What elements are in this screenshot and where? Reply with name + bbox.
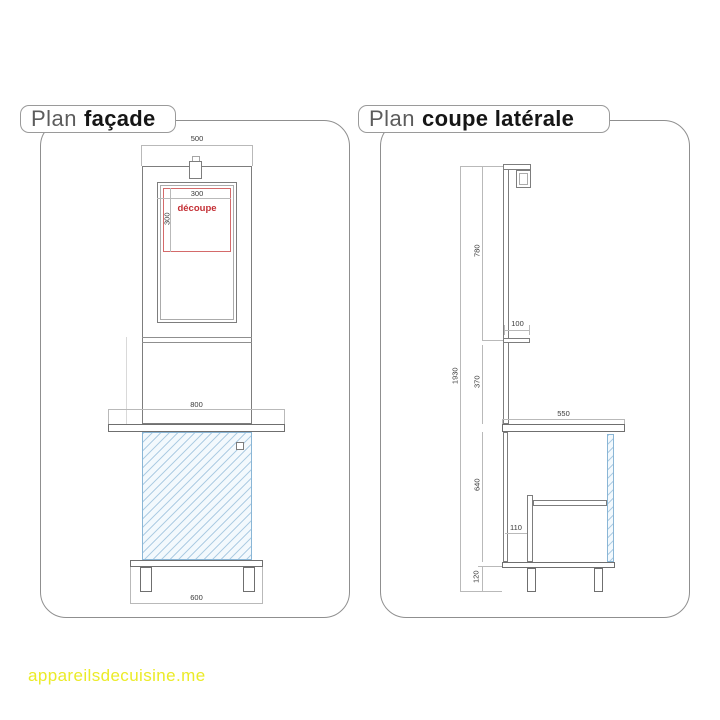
dim-550-label: 550 [502, 410, 625, 418]
dim-120-label: 120 [472, 565, 480, 589]
dim-500-ext-left [141, 145, 142, 166]
facade-glass-panel [142, 432, 252, 560]
dim-cutout-width-label: 300 [163, 190, 231, 198]
dim-500-line [141, 145, 253, 146]
dim-370-label: 370 [473, 370, 481, 394]
dim-1930-label: 1930 [451, 364, 459, 388]
dim-370-line [482, 345, 483, 424]
dim-800-line [108, 409, 285, 410]
facade-divider-top [142, 337, 252, 338]
dim-780-label: 780 [473, 239, 481, 263]
dim-tick-top [460, 166, 503, 167]
dim-800-label: 800 [108, 401, 285, 409]
coupe-panel-frame [380, 120, 690, 618]
dim-cutout-width-line [157, 198, 231, 199]
dim-780-line [482, 166, 483, 340]
dim-600-label: 600 [130, 594, 263, 602]
facade-cam-mount-box [189, 161, 202, 179]
facade-leg-right [243, 567, 255, 592]
dim-500-label: 500 [141, 135, 253, 143]
dim-100-label: 100 [504, 320, 531, 328]
dim-tick-bottom [460, 591, 502, 592]
coupe-worktop [502, 424, 625, 432]
dim-110-line [505, 533, 527, 534]
coupe-cabinet-back [503, 432, 508, 562]
dim-800-ext-left [108, 409, 109, 424]
facade-title-prefix: Plan [31, 106, 77, 132]
coupe-glass-strip [607, 434, 614, 562]
technical-drawing-page: 500 300 300 découpe 800 600 Plan façade … [0, 0, 720, 720]
coupe-leg-front [527, 568, 536, 592]
dim-550-line [502, 419, 625, 420]
dim-640-line [482, 432, 483, 562]
dim-100-ext-right [529, 325, 530, 335]
facade-leg-left [140, 567, 152, 592]
dim-100-line [504, 330, 530, 331]
dim-600-line [130, 603, 263, 604]
coupe-cam-box-inner [519, 173, 528, 185]
dim-tick-base [478, 566, 502, 567]
facade-worktop [108, 424, 285, 432]
watermark-text: appareilsdecuisine.me [28, 666, 206, 686]
coupe-upright-panel [503, 166, 509, 424]
dim-tick-shelf [482, 340, 503, 341]
dim-1930-line [460, 166, 461, 592]
coupe-leg-back [594, 568, 603, 592]
coupe-shelf [503, 338, 530, 343]
dim-500-ext-right [252, 145, 253, 166]
coupe-title-name: coupe latérale [422, 106, 574, 132]
facade-title-name: façade [84, 106, 156, 132]
facade-guide-line [126, 337, 127, 424]
dim-110-label: 110 [503, 524, 529, 532]
facade-divider-bottom [142, 342, 252, 343]
dim-120-line [482, 567, 483, 592]
facade-glass-fixing-square [236, 442, 244, 450]
facade-base-shelf [130, 560, 263, 567]
coupe-title-box: Plan coupe latérale [358, 105, 610, 133]
coupe-inner-shelf [533, 500, 607, 506]
facade-title-box: Plan façade [20, 105, 176, 133]
dim-640-label: 640 [473, 473, 481, 497]
coupe-title-prefix: Plan [369, 106, 415, 132]
cutout-label: découpe [163, 203, 231, 214]
dim-100-ext-left [504, 325, 505, 335]
dim-800-ext-right [284, 409, 285, 424]
